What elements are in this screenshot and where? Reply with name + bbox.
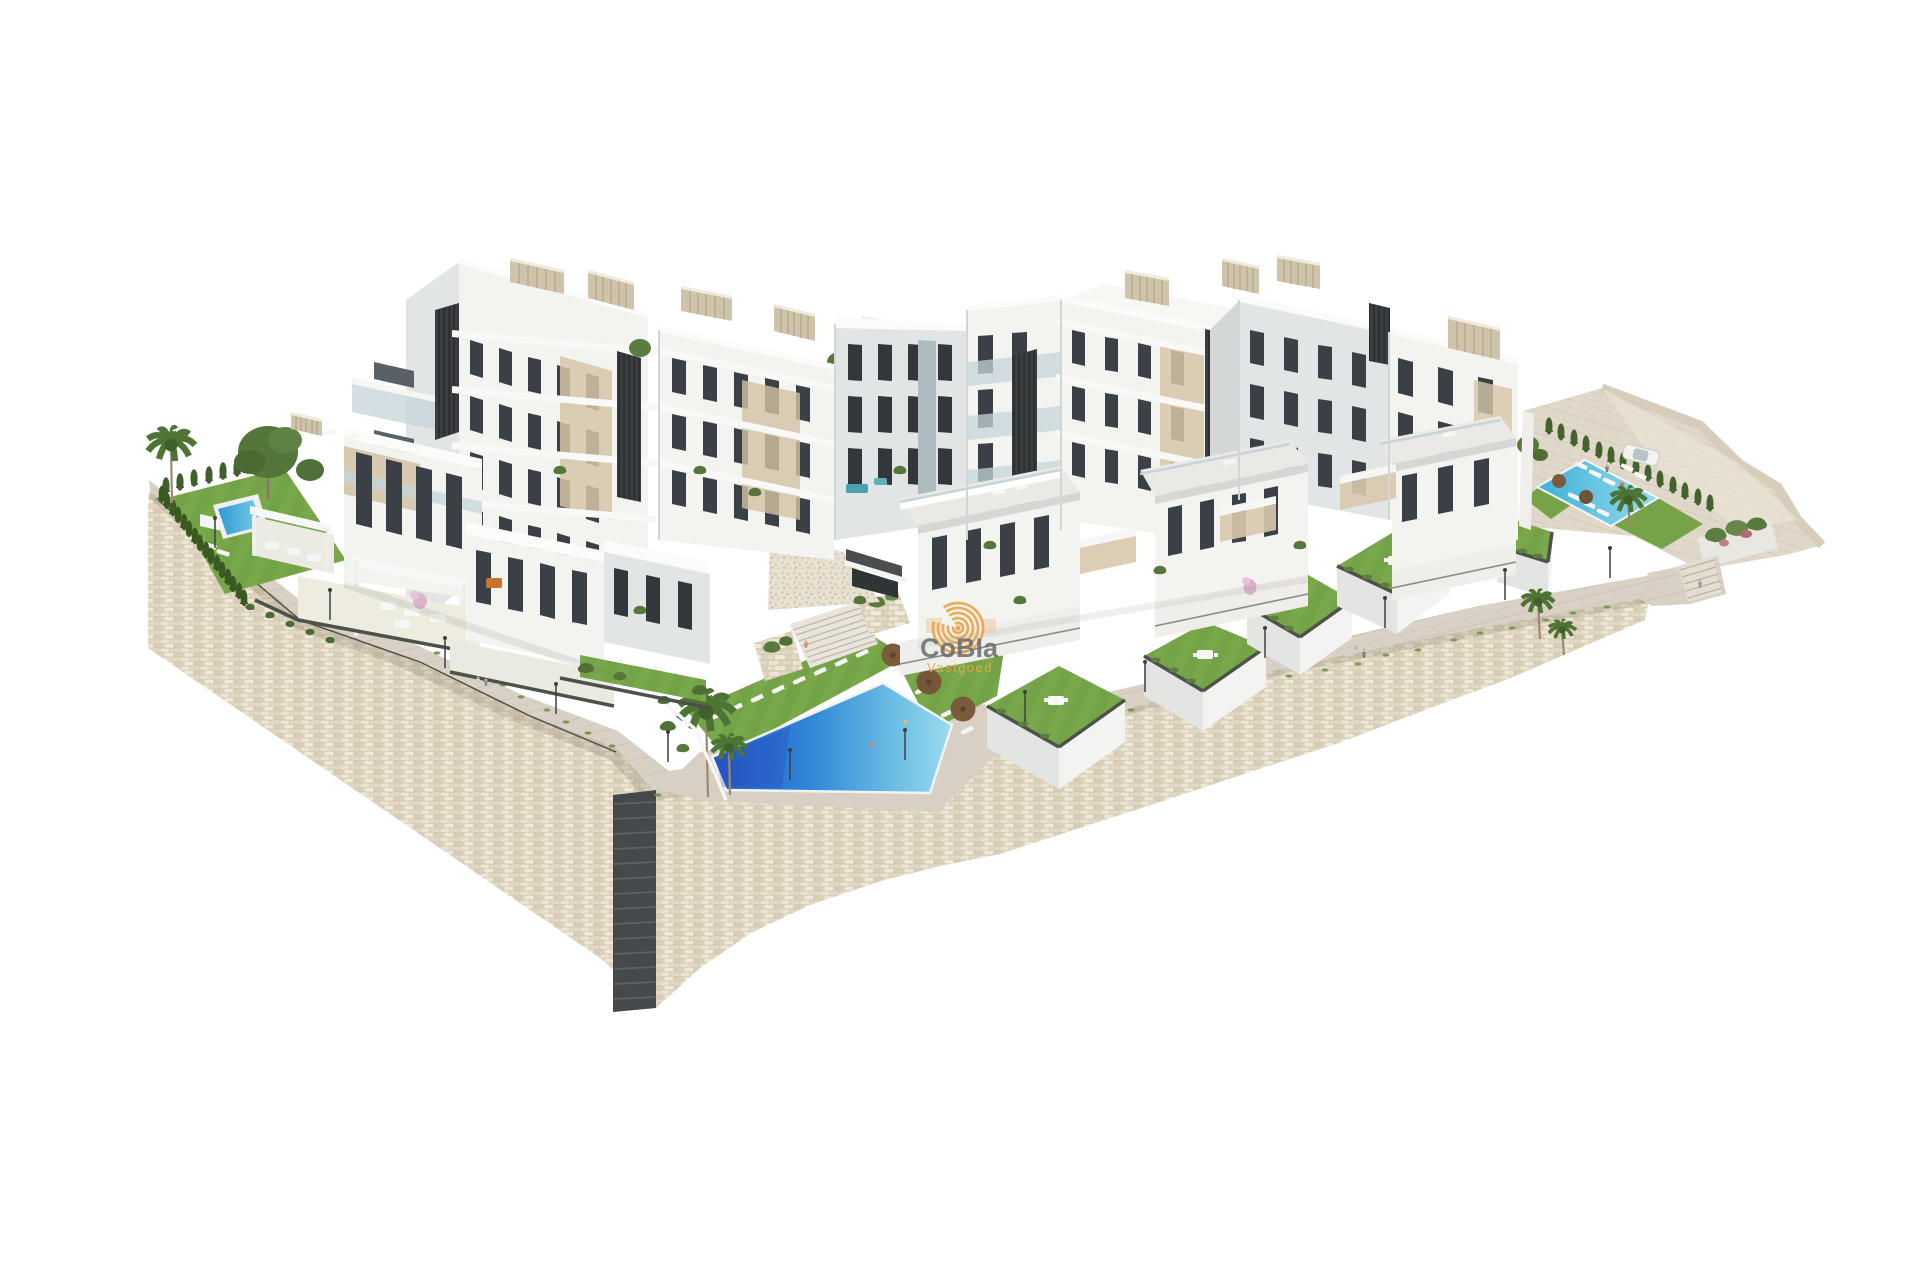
svg-text:Vastgoed: Vastgoed — [927, 660, 993, 675]
svg-text:CoBIa: CoBIa — [920, 633, 999, 663]
